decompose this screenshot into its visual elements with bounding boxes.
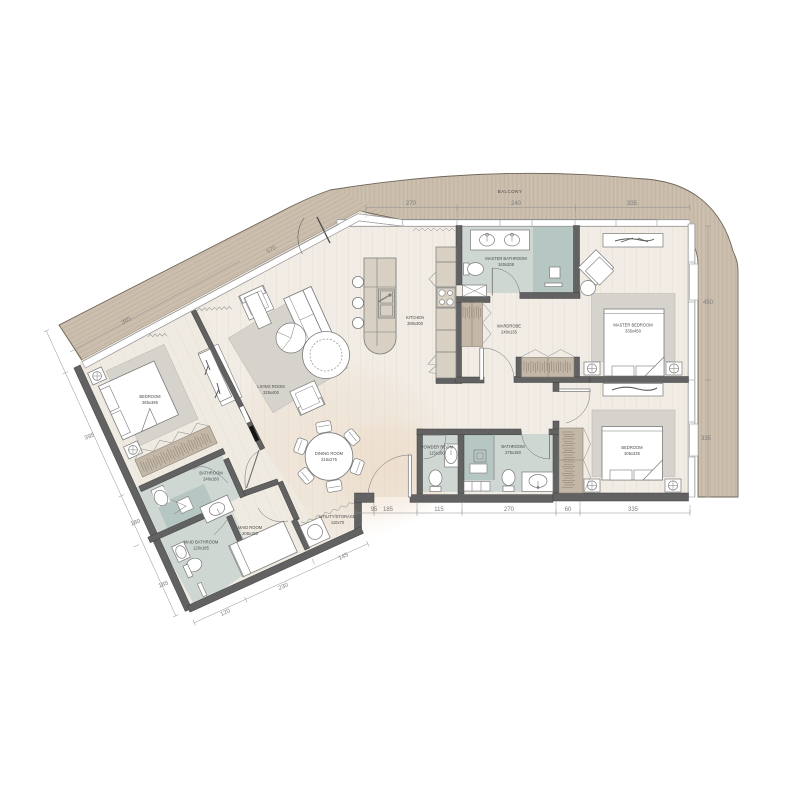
svg-text:BATHROOM: BATHROOM xyxy=(199,471,223,476)
svg-text:LIVING ROOM: LIVING ROOM xyxy=(257,384,285,389)
svg-text:185: 185 xyxy=(158,580,170,589)
svg-text:MASTER BEDROOM: MASTER BEDROOM xyxy=(613,323,653,328)
svg-text:335: 335 xyxy=(701,436,712,442)
svg-text:335: 335 xyxy=(627,201,638,207)
svg-text:110x70: 110x70 xyxy=(331,520,345,525)
svg-text:POWDER ROOM: POWDER ROOM xyxy=(421,445,454,450)
svg-text:335x450: 335x450 xyxy=(625,329,641,334)
svg-text:UTILITY/STORAGE: UTILITY/STORAGE xyxy=(319,514,356,519)
svg-text:145: 145 xyxy=(338,552,350,562)
svg-text:365x395: 365x395 xyxy=(142,400,158,405)
svg-text:305x335: 305x335 xyxy=(624,451,640,456)
svg-text:185: 185 xyxy=(383,507,394,513)
svg-text:270: 270 xyxy=(504,507,515,513)
svg-text:208x180: 208x180 xyxy=(242,531,258,536)
svg-text:240: 240 xyxy=(511,201,522,207)
svg-text:60: 60 xyxy=(565,507,572,513)
svg-text:270: 270 xyxy=(406,201,417,207)
svg-text:BATHROOM: BATHROOM xyxy=(501,444,525,449)
svg-text:280x300: 280x300 xyxy=(407,321,423,326)
svg-text:MAID ROOM: MAID ROOM xyxy=(238,525,263,530)
svg-text:230: 230 xyxy=(278,582,290,592)
svg-text:395: 395 xyxy=(84,432,96,441)
svg-text:WARDROBE: WARDROBE xyxy=(497,324,521,329)
svg-text:KITCHEN: KITCHEN xyxy=(406,315,424,320)
svg-text:MAID BATHROOM: MAID BATHROOM xyxy=(184,540,219,545)
svg-text:120: 120 xyxy=(220,608,232,618)
svg-text:120x185: 120x185 xyxy=(193,546,209,551)
svg-text:335: 335 xyxy=(628,507,639,513)
svg-text:115x180: 115x180 xyxy=(429,451,445,456)
svg-text:115: 115 xyxy=(434,507,444,513)
svg-text:MASTER BATHROOM: MASTER BATHROOM xyxy=(485,256,527,261)
svg-text:275x180: 275x180 xyxy=(505,450,521,455)
svg-text:DINING ROOM: DINING ROOM xyxy=(315,451,344,456)
svg-text:240x160: 240x160 xyxy=(203,477,219,482)
svg-text:BALCONY: BALCONY xyxy=(498,189,523,194)
svg-text:95: 95 xyxy=(371,507,378,513)
svg-text:BEDROOM: BEDROOM xyxy=(139,394,161,399)
svg-text:315x275: 315x275 xyxy=(321,457,337,462)
svg-text:325x400: 325x400 xyxy=(263,390,279,395)
svg-text:340x208: 340x208 xyxy=(498,262,514,267)
svg-text:180: 180 xyxy=(130,518,142,527)
svg-text:240x135: 240x135 xyxy=(501,330,517,335)
svg-text:BEDROOM: BEDROOM xyxy=(621,445,643,450)
svg-text:450: 450 xyxy=(703,300,714,306)
